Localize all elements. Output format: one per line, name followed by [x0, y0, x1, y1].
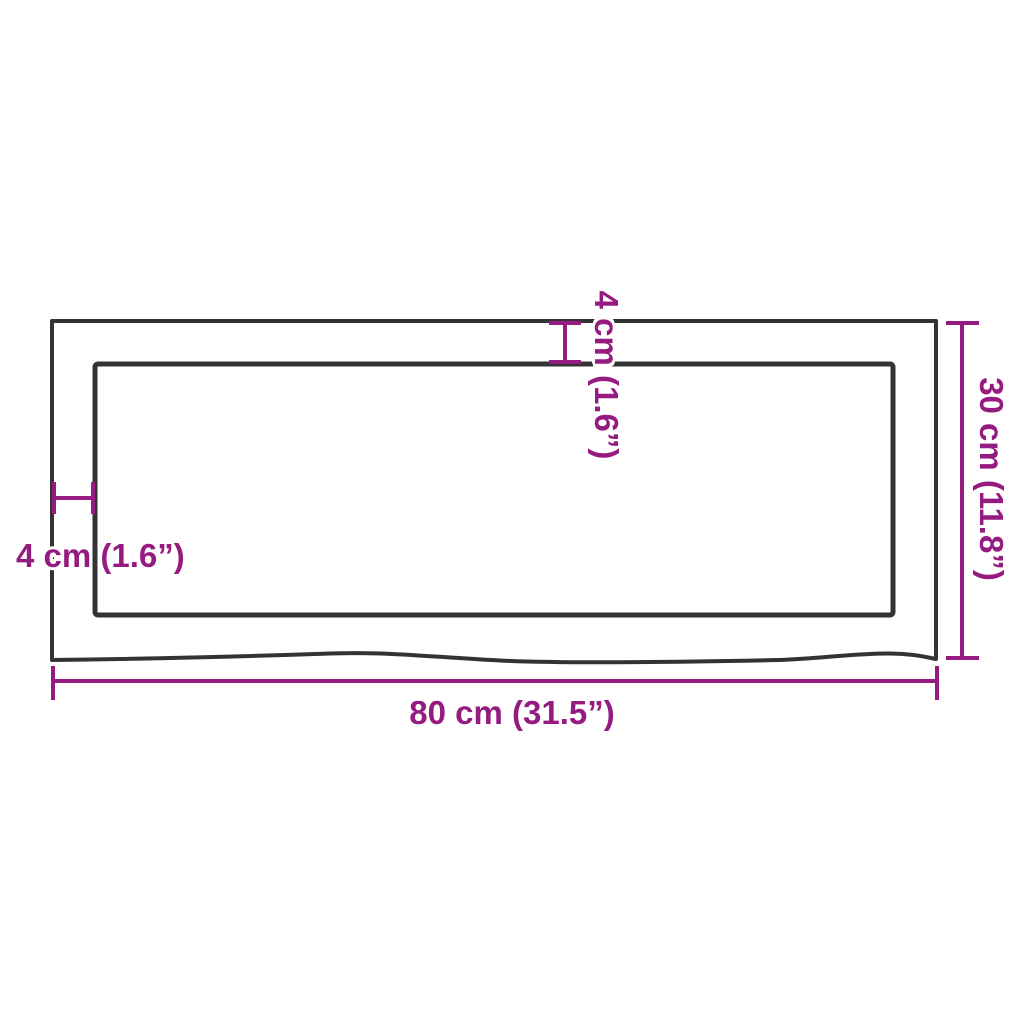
top-thickness-label: 4 cm (1.6”): [586, 288, 626, 462]
board-inner-edge: [95, 364, 893, 615]
board-outer-edge: [52, 321, 936, 662]
height-dimension-label: 30 cm (11.8”): [971, 374, 1011, 584]
left-thickness-label: 4 cm (1.6”): [16, 537, 185, 575]
top-thickness-tick: [549, 322, 581, 363]
board-drawing: [0, 0, 1024, 1024]
left-thickness-tick: [52, 482, 95, 514]
width-dimension-label: 80 cm (31.5”): [0, 694, 1024, 732]
dimension-diagram: 4 cm (1.6”) 4 cm (1.6”) 30 cm (11.8”) 80…: [0, 0, 1024, 1024]
